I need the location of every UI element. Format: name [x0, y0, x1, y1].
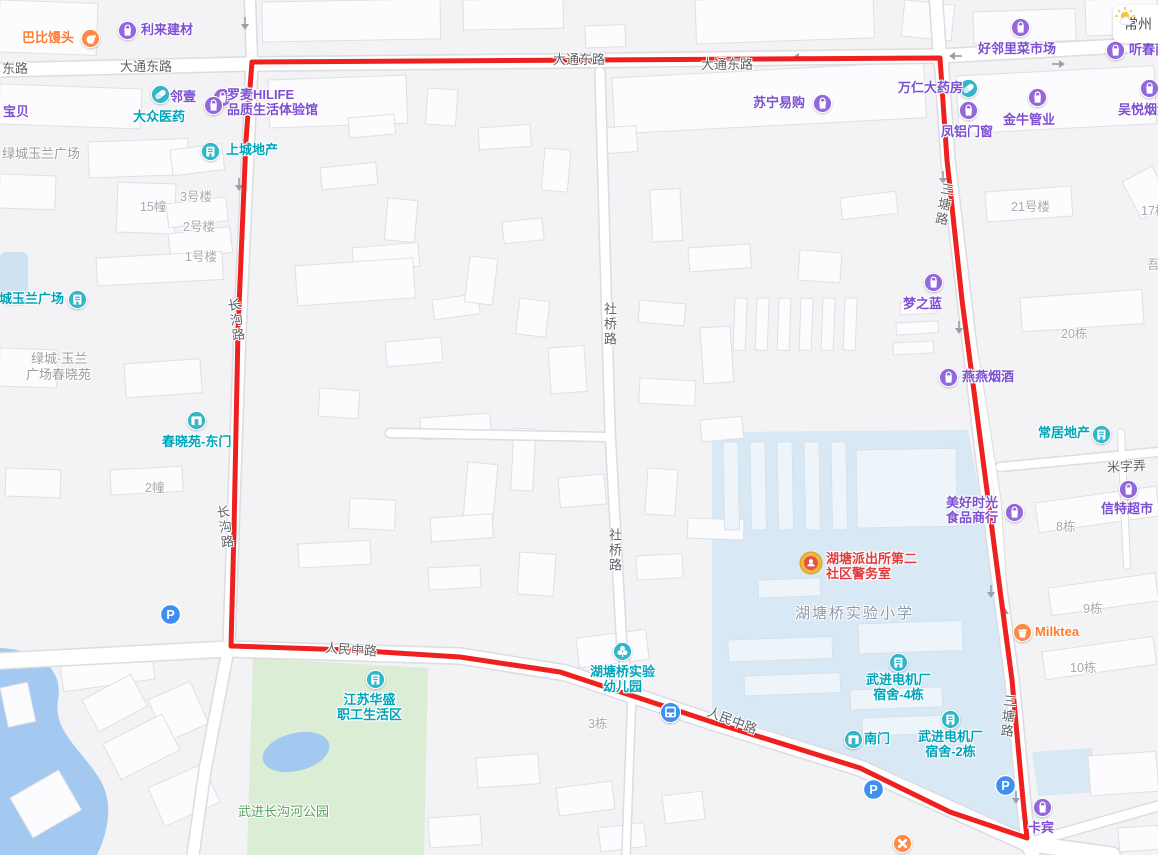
- estate-icon[interactable]: [941, 710, 960, 729]
- kabin-label[interactable]: 卡宾: [1028, 820, 1054, 835]
- bag-icon[interactable]: [1028, 88, 1047, 107]
- bag-icon[interactable]: [1011, 18, 1030, 37]
- area-label: 绿城·玉兰: [31, 351, 87, 367]
- cake-icon[interactable]: [1013, 623, 1032, 642]
- building-label: 21号楼: [1011, 196, 1050, 215]
- building-label: 20栋: [1061, 323, 1087, 342]
- road-label: 大通东路: [701, 58, 753, 72]
- meihao-food-label[interactable]: 美好时光食品商行: [946, 495, 998, 525]
- area-label: 武进长沟河公园: [238, 804, 329, 820]
- south-gate-label[interactable]: 南门: [864, 731, 890, 746]
- road-label: 三塘路: [998, 693, 1016, 739]
- kindergarten-label[interactable]: 湖塘桥实验幼儿园: [590, 664, 655, 694]
- wuyue-tobacco-label[interactable]: 吴悦烟酒: [1118, 102, 1158, 117]
- bag-icon[interactable]: [1106, 41, 1125, 60]
- labels-layer: 巴比馒头利来建材好邻里菜市场听春南邻邻壹宝贝大众医药罗麦HILIFE品质生活体验…: [0, 0, 1158, 855]
- tingchun-label[interactable]: 听春南: [1129, 42, 1158, 57]
- bag-icon[interactable]: [813, 94, 832, 113]
- yanyan-tobacco-label[interactable]: 燕燕烟酒: [962, 369, 1014, 384]
- estate-icon[interactable]: [889, 653, 908, 672]
- building-label: 吾: [1147, 254, 1158, 273]
- babi-mantou-label[interactable]: 巴比馒头: [22, 30, 74, 45]
- mengzhilan-label[interactable]: 梦之蓝: [903, 296, 942, 311]
- area-label: 绿城玉兰广场: [2, 146, 80, 162]
- svg-text:P: P: [166, 608, 174, 622]
- chunxiaoyuan-east-gate-label[interactable]: 春晓苑-东门: [162, 434, 231, 449]
- svg-text:P: P: [1001, 779, 1009, 793]
- flower-icon[interactable]: [613, 642, 632, 661]
- map-canvas[interactable]: 巴比馒头利来建材好邻里菜市场听春南邻邻壹宝贝大众医药罗麦HILIFE品质生活体验…: [0, 0, 1158, 855]
- building-label: 1号楼: [185, 246, 217, 265]
- estate-icon[interactable]: [201, 142, 220, 161]
- shangcheng-estate-label[interactable]: 上城地产: [226, 142, 278, 157]
- road-label: 三塘路: [932, 181, 954, 228]
- jiangsu-huasheng-label[interactable]: 江苏华盛职工生活区: [337, 692, 402, 722]
- pill-icon[interactable]: [151, 85, 170, 104]
- building-label: 2幢: [145, 477, 164, 496]
- dorm-2-label[interactable]: 武进电机厂宿舍-2栋: [918, 729, 983, 759]
- parking-icon[interactable]: P: [995, 775, 1016, 796]
- lilai-jiancai-label[interactable]: 利来建材: [141, 22, 193, 37]
- weather-widget[interactable]: 常州: [1113, 5, 1158, 43]
- road-label: 人民中路: [705, 705, 759, 737]
- road-label: 大通东路: [120, 60, 172, 74]
- bag-icon[interactable]: [118, 21, 137, 40]
- suning-label[interactable]: 苏宁易购: [753, 95, 805, 110]
- closed-icon[interactable]: [893, 834, 912, 853]
- building-label: 3号楼: [180, 186, 212, 205]
- luomai-hilife-label[interactable]: 罗麦HILIFE品质生活体验馆: [227, 87, 318, 117]
- building-label: 8栋: [1056, 516, 1075, 535]
- jinniu-pipes-label[interactable]: 金牛管业: [1003, 112, 1055, 127]
- bag-icon[interactable]: [204, 96, 223, 115]
- changju-estate-label[interactable]: 常居地产: [1038, 425, 1090, 440]
- building-label: 17栋: [1141, 200, 1158, 219]
- road-label: 大通东路: [553, 53, 605, 67]
- police-room-label[interactable]: 湖塘派出所第二社区警务室: [826, 551, 917, 581]
- road-label: 长沟路: [214, 504, 234, 551]
- bag-icon[interactable]: [1033, 798, 1052, 817]
- fenglv-doors-label[interactable]: 凤铝门窗: [941, 124, 993, 139]
- bus-icon[interactable]: [660, 702, 681, 723]
- gate-icon[interactable]: [187, 411, 206, 430]
- svg-text:P: P: [869, 783, 877, 797]
- dorm-4-label[interactable]: 武进电机厂宿舍-4栋: [866, 672, 931, 702]
- haolinli-market-label[interactable]: 好邻里菜市场: [978, 41, 1056, 56]
- wanren-pharmacy-label[interactable]: 万仁大药房: [898, 80, 963, 95]
- road-label: 米字弄: [1107, 459, 1147, 475]
- bag-icon[interactable]: [1005, 503, 1024, 522]
- bag-icon[interactable]: [959, 101, 978, 120]
- building-label: 9栋: [1083, 598, 1102, 617]
- estate-icon[interactable]: [68, 290, 87, 309]
- bag-icon[interactable]: [1119, 480, 1138, 499]
- parking-icon[interactable]: P: [863, 779, 884, 800]
- bag-icon[interactable]: [939, 368, 958, 387]
- building-label: 3栋: [588, 713, 607, 732]
- gate-icon[interactable]: [844, 730, 863, 749]
- building-label: 10栋: [1070, 657, 1096, 676]
- parking-icon[interactable]: P: [160, 604, 181, 625]
- building-label: 2号楼: [183, 216, 215, 235]
- hand-icon[interactable]: [81, 29, 100, 48]
- road-label: 社桥路: [602, 302, 616, 347]
- milktea-label[interactable]: Milktea: [1035, 624, 1079, 639]
- road-label: 长沟路: [225, 297, 245, 344]
- road-label: 社桥路: [607, 528, 621, 573]
- area-label: 广场春晓苑: [26, 367, 91, 383]
- estate-icon[interactable]: [1092, 425, 1111, 444]
- baobei-label[interactable]: 宝贝: [3, 104, 29, 119]
- bag-icon[interactable]: [924, 273, 943, 292]
- road-label: 东路: [2, 62, 28, 76]
- bag-icon[interactable]: [1140, 79, 1158, 98]
- lvcheng-yulan-plaza-gate-label[interactable]: 绿城玉兰广场: [0, 291, 64, 306]
- area-label: 湖塘桥实验小学: [795, 606, 914, 622]
- police-icon[interactable]: [799, 551, 823, 575]
- road-label: 人民中路: [325, 641, 378, 659]
- dazhong-pharmacy-label[interactable]: 大众医药: [133, 109, 185, 124]
- xinte-supermarket-label[interactable]: 信特超市: [1101, 501, 1153, 516]
- estate-icon[interactable]: [366, 670, 385, 689]
- building-label: 15幢: [140, 196, 166, 215]
